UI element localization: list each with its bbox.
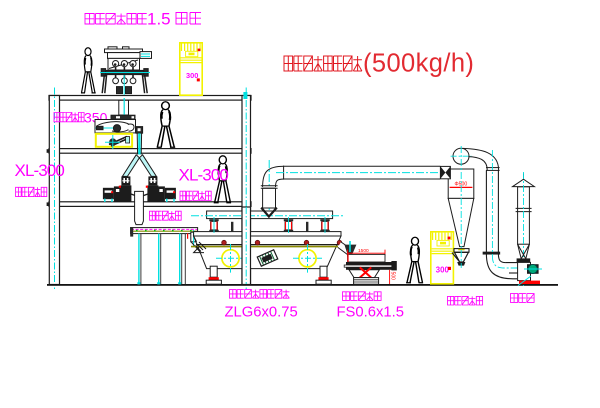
svg-text:1500: 1500: [358, 248, 369, 254]
svg-text:XL-300: XL-300: [179, 166, 229, 185]
svg-text:ZLG6x0.75: ZLG6x0.75: [225, 305, 298, 321]
svg-text:1.5: 1.5: [147, 10, 171, 29]
svg-text:FS0.6x1.5: FS0.6x1.5: [337, 305, 404, 321]
svg-text:300: 300: [186, 71, 198, 80]
svg-text:300: 300: [436, 266, 450, 275]
svg-text:(500kg/h): (500kg/h): [363, 50, 474, 78]
svg-text:500: 500: [389, 272, 395, 281]
svg-text:XL-300: XL-300: [15, 161, 65, 180]
